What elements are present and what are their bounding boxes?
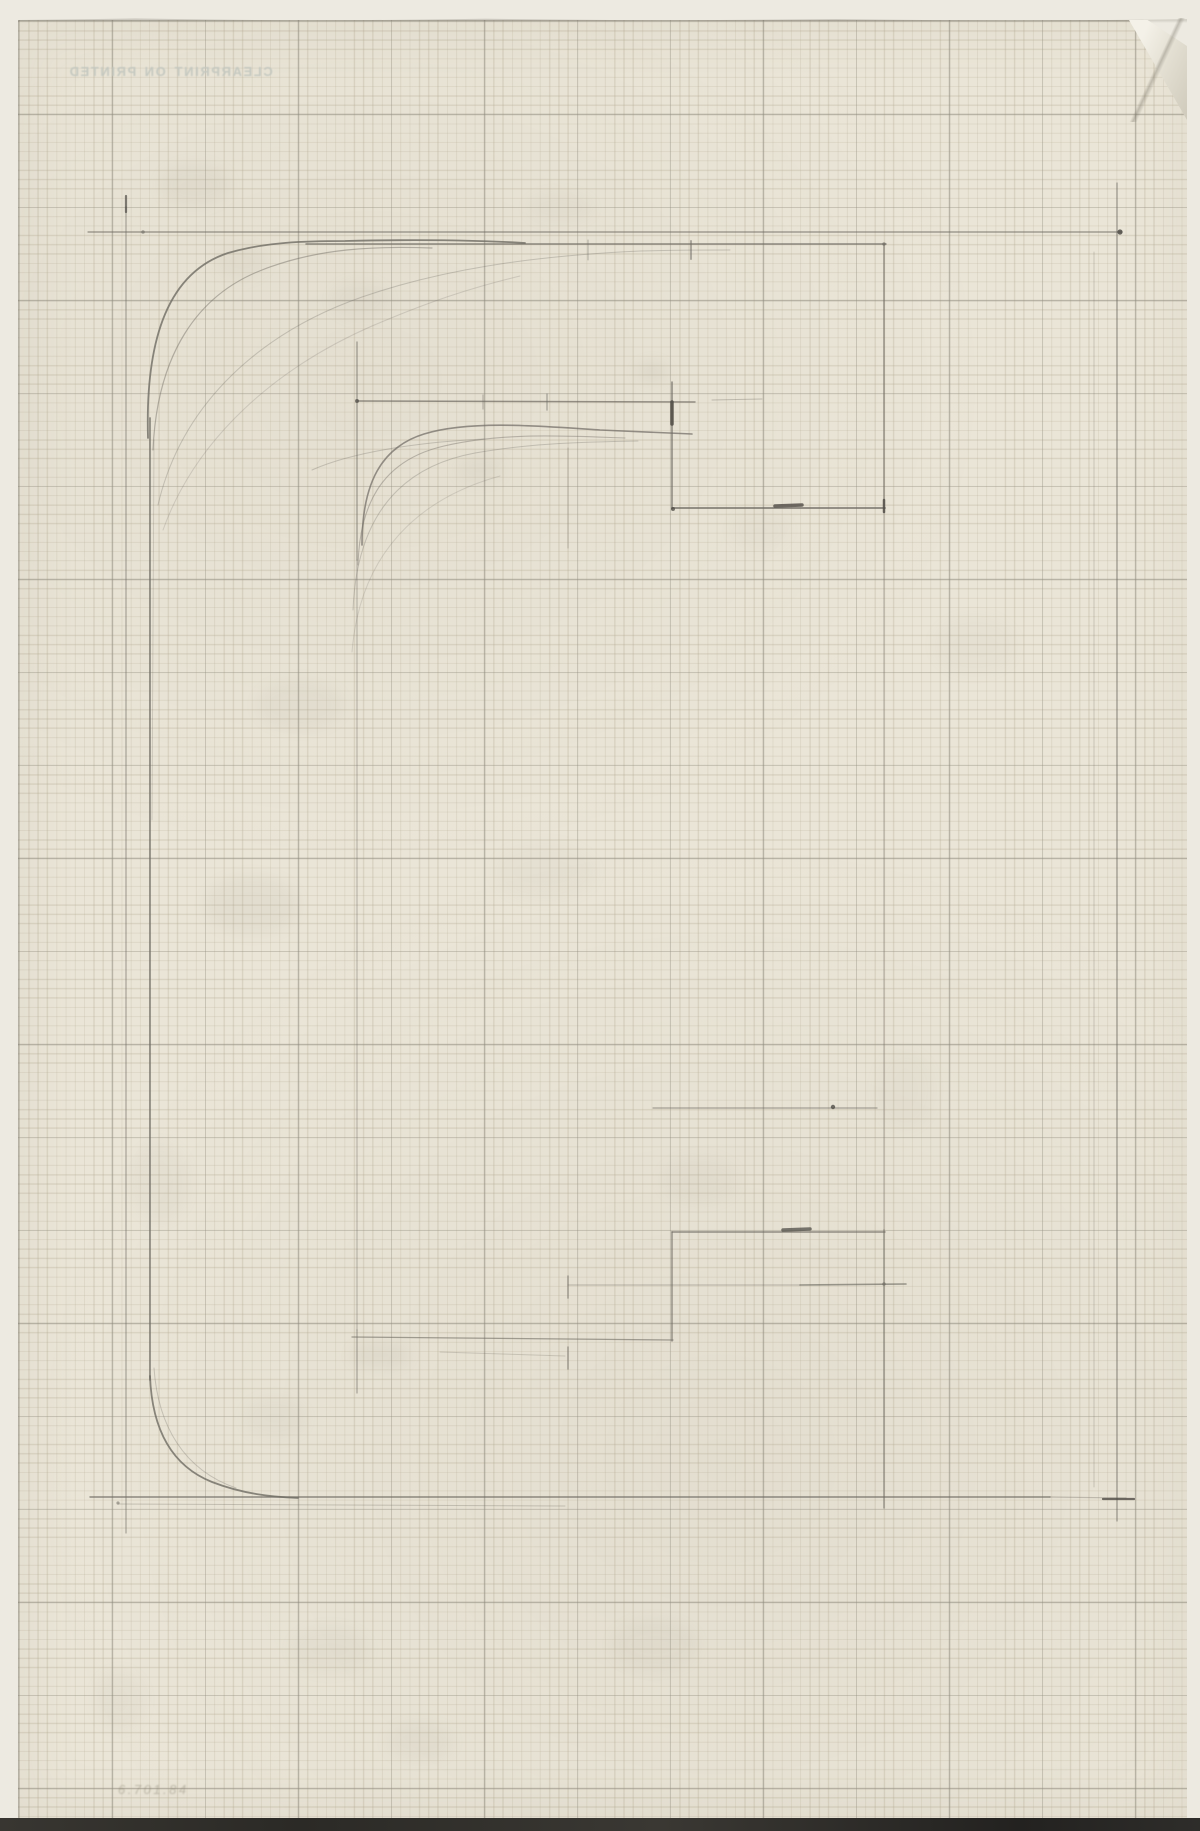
watermark-word: ON bbox=[143, 64, 166, 79]
watermark-word: CLEARPRINT bbox=[173, 64, 273, 79]
pencil-inscription: 6.701.84 bbox=[118, 1782, 189, 1797]
graph-paper-sheet bbox=[18, 20, 1189, 1820]
watermark-word: PRINTED bbox=[68, 64, 136, 79]
clearprint-watermark-mirrored: PRINTEDONCLEARPRINT bbox=[68, 64, 298, 79]
scanner-background-band bbox=[0, 1818, 1200, 1831]
scanned-sketch-page: PRINTEDONCLEARPRINT 6.701.84 bbox=[0, 0, 1200, 1831]
